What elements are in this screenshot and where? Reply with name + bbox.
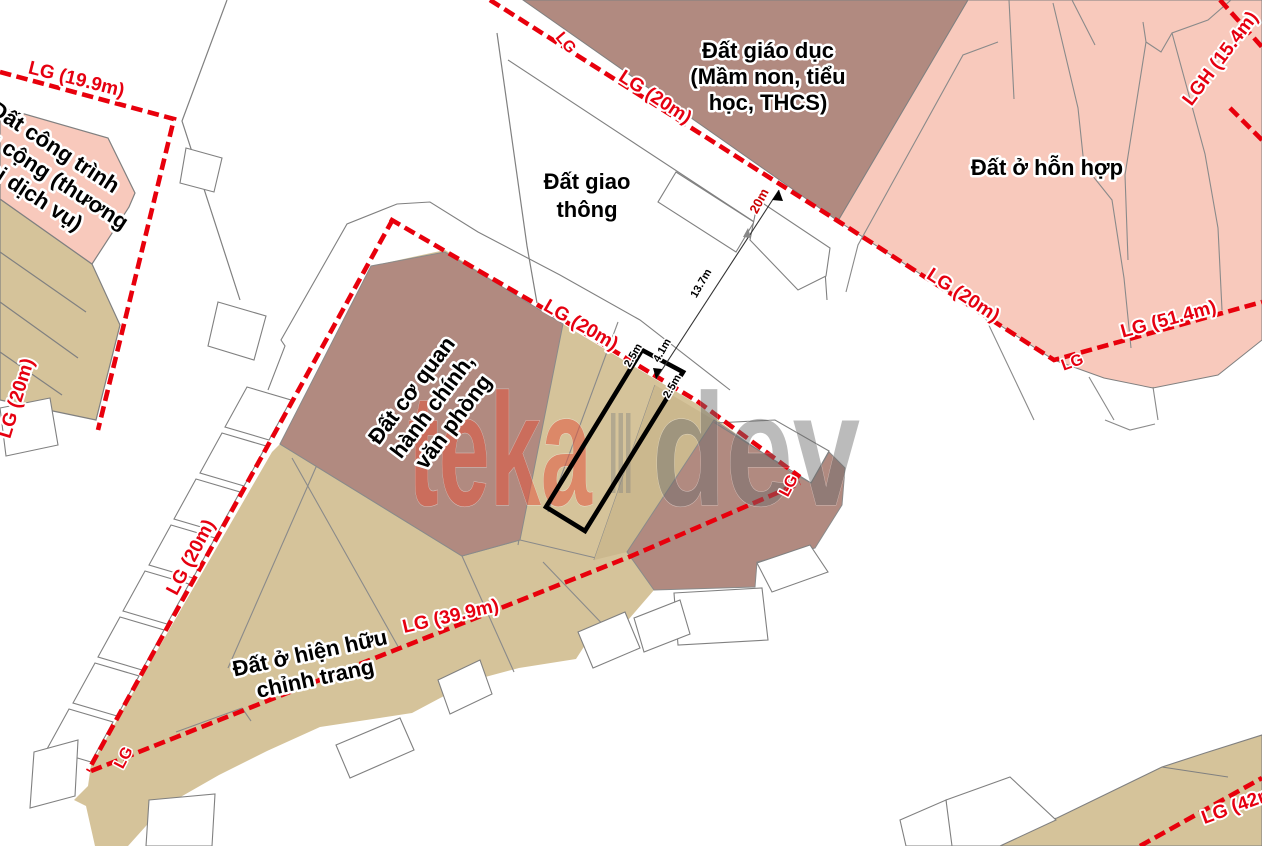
svg-text:Đất giao: Đất giao bbox=[544, 169, 631, 194]
svg-text:(Mầm non, tiểu: (Mầm non, tiểu bbox=[690, 64, 845, 89]
svg-text:thông: thông bbox=[556, 197, 617, 222]
svg-text:Đất giáo dục: Đất giáo dục bbox=[702, 38, 834, 63]
svg-text:học, THCS): học, THCS) bbox=[709, 90, 828, 115]
svg-text:Đất ở hỗn hợp: Đất ở hỗn hợp bbox=[971, 155, 1123, 180]
svg-text:dev: dev bbox=[652, 360, 860, 539]
